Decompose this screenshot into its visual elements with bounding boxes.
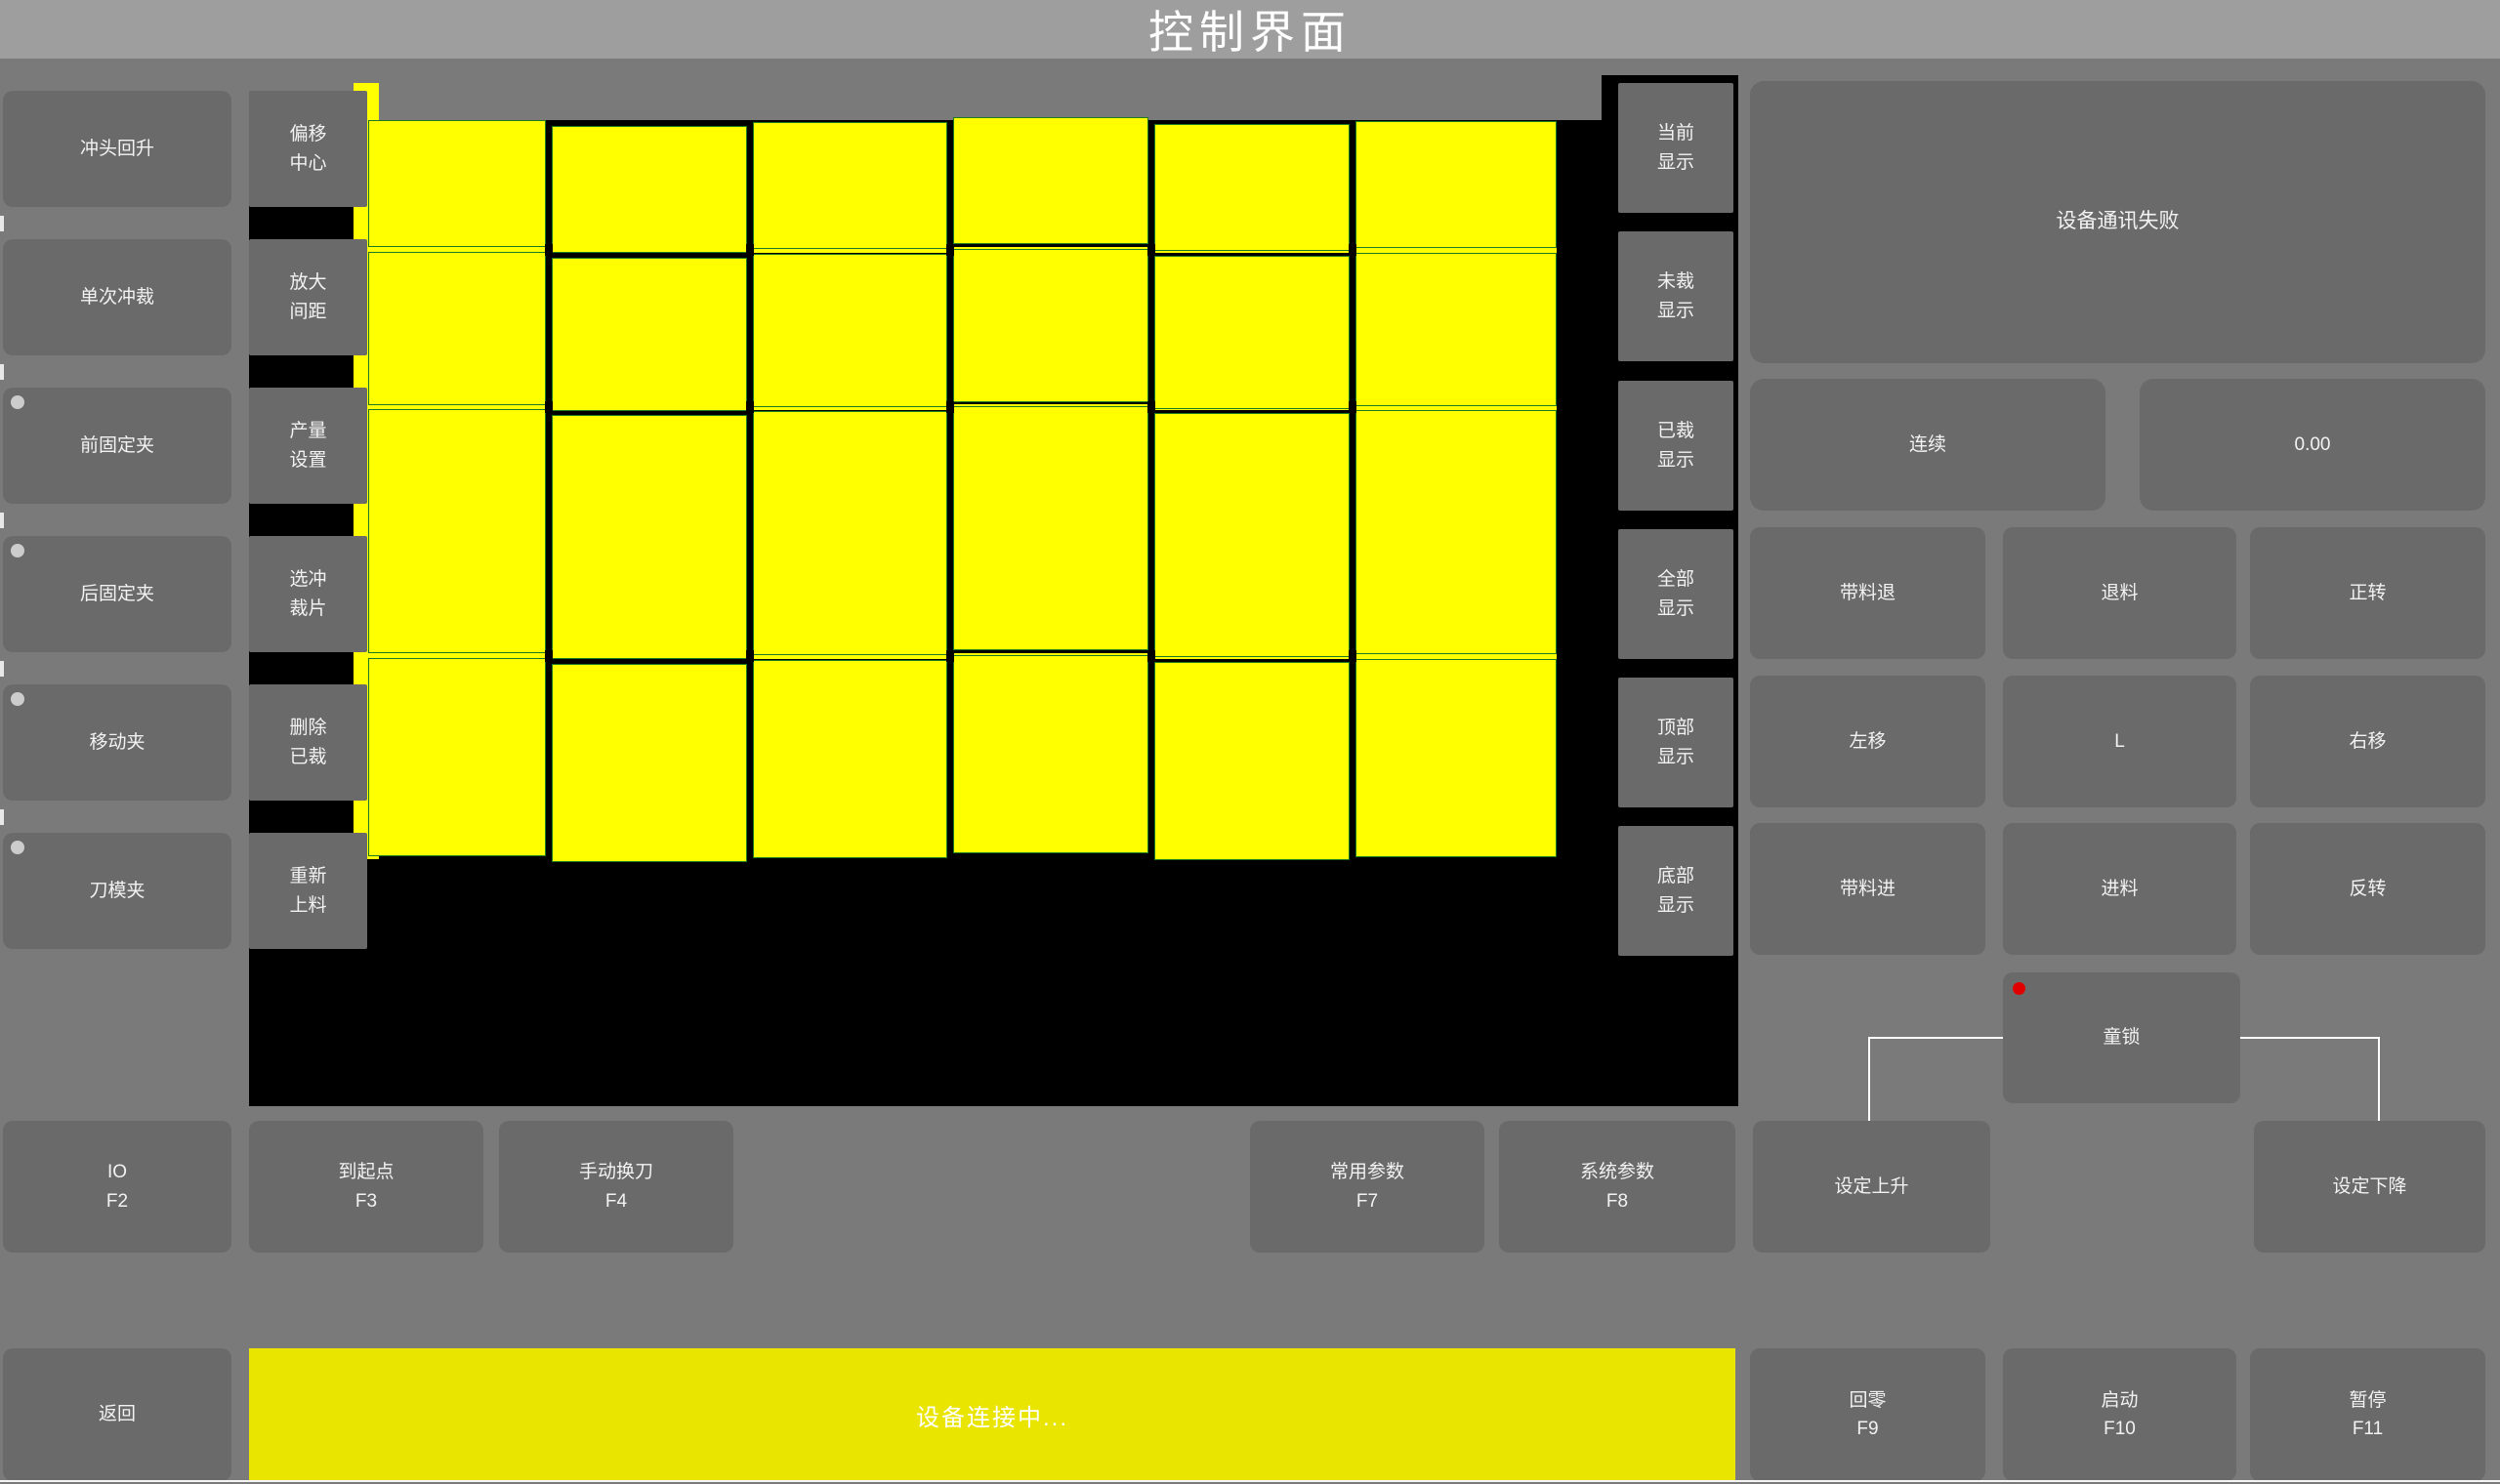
button-common-params-f7[interactable]: 常用参数F7 — [1250, 1121, 1484, 1253]
page-title: 控制界面 — [1148, 0, 1352, 62]
nesting-piece — [1154, 413, 1350, 657]
nesting-grid-detail — [1147, 244, 1155, 256]
nesting-piece — [368, 409, 546, 653]
nesting-piece — [368, 658, 546, 856]
nesting-grid-detail — [746, 244, 754, 256]
back-button[interactable]: 返回 — [3, 1348, 231, 1481]
button-label: 设定上升 — [1834, 1173, 1908, 1201]
device-status-panel: 设备通讯失败 — [1750, 81, 2485, 363]
button-label: 连续 — [1909, 431, 1946, 459]
button-label: 底部 — [1657, 862, 1694, 890]
button-die-clamp[interactable]: 刀模夹 — [3, 833, 231, 949]
button-label: L — [2114, 727, 2125, 756]
nesting-grid-detail — [946, 244, 954, 256]
fkey-label: F9 — [1856, 1415, 1878, 1443]
button-label: 显示 — [1657, 891, 1694, 920]
button-front-clamp[interactable]: 前固定夹 — [3, 388, 231, 504]
nesting-piece — [953, 117, 1148, 244]
button-l-mode[interactable]: L — [2003, 676, 2236, 807]
button-label: 设定下降 — [2332, 1173, 2406, 1201]
bracket-line — [2378, 1037, 2380, 1123]
edge-mark — [0, 216, 4, 231]
fkey-label: F3 — [355, 1187, 377, 1216]
button-label: 设置 — [289, 446, 326, 474]
indicator-dot — [11, 692, 24, 706]
edge-mark — [0, 364, 4, 380]
edge-mark — [0, 661, 4, 677]
connection-status-text: 设备连接中... — [916, 1398, 1068, 1432]
button-label: 删除 — [289, 714, 326, 742]
button-label: 全部 — [1657, 565, 1694, 594]
nesting-piece — [1154, 256, 1350, 409]
button-punch-return[interactable]: 冲头回升 — [3, 91, 231, 207]
button-offset-center[interactable]: 偏移中心 — [249, 91, 367, 207]
button-label: 启动 — [2101, 1386, 2138, 1415]
button-label: 右移 — [2349, 727, 2386, 756]
button-label: 裁片 — [289, 595, 326, 623]
button-label: 未裁 — [1657, 268, 1694, 296]
nesting-piece — [953, 655, 1148, 853]
nesting-grid-detail — [1147, 650, 1155, 662]
bracket-line — [2240, 1037, 2380, 1039]
nesting-piece — [953, 406, 1148, 650]
button-label: 刀模夹 — [89, 877, 145, 905]
button-rotate-reverse[interactable]: 反转 — [2250, 823, 2485, 955]
value-display-field[interactable]: 0.00 — [2140, 379, 2485, 511]
button-label: 当前 — [1657, 119, 1694, 147]
nesting-piece — [953, 249, 1148, 402]
device-status-text: 设备通讯失败 — [2057, 206, 2180, 238]
button-to-origin-f3[interactable]: 到起点F3 — [249, 1121, 483, 1253]
nesting-grid-detail — [1349, 401, 1356, 413]
button-feed-material[interactable]: 进料 — [2003, 823, 2236, 955]
nesting-piece — [1355, 121, 1557, 248]
button-feed-in-with-material[interactable]: 带料进 — [1750, 823, 1985, 955]
button-label: IO — [107, 1158, 127, 1186]
button-label: 上料 — [289, 891, 326, 920]
edge-mark — [0, 513, 4, 528]
nesting-grid-detail — [545, 650, 553, 662]
nesting-piece — [552, 664, 747, 862]
button-label: 显示 — [1657, 743, 1694, 771]
button-label: 移动夹 — [89, 728, 145, 757]
button-delete-cut[interactable]: 删除已裁 — [249, 684, 367, 801]
button-label: 选冲 — [289, 565, 326, 594]
button-label: 已裁 — [289, 743, 326, 771]
bottom-edge-line — [0, 1480, 2500, 1482]
bracket-line — [1868, 1037, 2003, 1039]
nesting-piece — [753, 254, 947, 407]
button-moving-clamp[interactable]: 移动夹 — [3, 684, 231, 801]
button-label: 退料 — [2101, 579, 2138, 607]
button-label: 放大 — [289, 268, 326, 297]
nesting-grid-detail — [946, 401, 954, 413]
button-label: 正转 — [2349, 579, 2386, 607]
child-lock-led — [2013, 982, 2025, 995]
nesting-piece — [753, 411, 947, 655]
button-label: 童锁 — [2103, 1023, 2140, 1051]
button-home-f9[interactable]: 回零F9 — [1750, 1348, 1985, 1481]
indicator-dot — [11, 395, 24, 409]
button-child-lock[interactable]: 童锁 — [2003, 972, 2240, 1103]
button-label: 冲头回升 — [80, 135, 154, 163]
nesting-piece — [552, 415, 747, 659]
nesting-grid-detail — [1147, 401, 1155, 413]
nesting-grid-detail — [946, 650, 954, 662]
nesting-piece — [753, 660, 947, 858]
edge-mark — [0, 809, 4, 825]
button-label: 已裁 — [1657, 417, 1694, 445]
nesting-grid-detail — [545, 401, 553, 413]
button-show-top[interactable]: 顶部显示 — [1618, 678, 1733, 807]
indicator-dot — [11, 544, 24, 557]
mode-continuous-button[interactable]: 连续 — [1750, 379, 2105, 511]
button-label: 重新 — [289, 862, 326, 890]
button-label: 到起点 — [338, 1158, 394, 1186]
button-show-bottom[interactable]: 底部显示 — [1618, 826, 1733, 956]
button-label: 显示 — [1657, 148, 1694, 177]
button-show-current[interactable]: 当前显示 — [1618, 83, 1733, 213]
button-unload-material[interactable]: 退料 — [2003, 527, 2236, 659]
fkey-label: F8 — [1606, 1187, 1628, 1216]
button-output-settings[interactable]: 产量设置 — [249, 388, 367, 504]
nesting-grid-detail — [1349, 244, 1356, 256]
button-label: 后固定夹 — [80, 580, 154, 608]
fkey-label: F2 — [106, 1187, 128, 1216]
nesting-piece — [1154, 662, 1350, 860]
button-label: 反转 — [2349, 875, 2386, 903]
button-enlarge-spacing[interactable]: 放大间距 — [249, 239, 367, 355]
nesting-piece — [1355, 659, 1557, 857]
button-label: 左移 — [1849, 727, 1886, 756]
button-label: 显示 — [1657, 446, 1694, 474]
nesting-piece — [552, 126, 747, 253]
nesting-piece — [552, 258, 747, 411]
button-show-uncut[interactable]: 未裁显示 — [1618, 231, 1733, 361]
button-label: 显示 — [1657, 595, 1694, 623]
button-label: 暂停 — [2349, 1386, 2386, 1415]
button-rear-clamp[interactable]: 后固定夹 — [3, 536, 231, 652]
nesting-piece — [753, 122, 947, 249]
value-text: 0.00 — [2295, 431, 2331, 459]
button-label: 带料进 — [1840, 875, 1896, 903]
button-reload-material[interactable]: 重新上料 — [249, 833, 367, 949]
nesting-grid-detail — [746, 401, 754, 413]
button-show-all[interactable]: 全部显示 — [1618, 529, 1733, 659]
nesting-piece — [1355, 253, 1557, 406]
nesting-piece — [1154, 124, 1350, 251]
title-bar: 控制界面 — [0, 0, 2500, 59]
button-start-f10[interactable]: 启动F10 — [2003, 1348, 2236, 1481]
button-label: 回零 — [1849, 1386, 1886, 1415]
nesting-piece — [368, 252, 546, 405]
button-manual-tool-change-f4[interactable]: 手动换刀F4 — [499, 1121, 733, 1253]
button-label: 返回 — [99, 1400, 136, 1428]
control-screen: 控制界面 冲头回升 单次冲裁 前固定夹 后固定夹 移动夹 刀模夹 偏移中心 放大… — [0, 0, 2500, 1484]
button-label: 手动换刀 — [579, 1158, 653, 1186]
nesting-piece — [1355, 410, 1557, 654]
button-label: 顶部 — [1657, 714, 1694, 742]
fkey-label: F11 — [2353, 1415, 2383, 1443]
button-select-piece[interactable]: 选冲裁片 — [249, 536, 367, 652]
fkey-label: F10 — [2104, 1415, 2136, 1443]
button-label: 中心 — [289, 149, 326, 178]
button-label: 常用参数 — [1330, 1158, 1404, 1186]
button-label: 进料 — [2101, 875, 2138, 903]
button-move-right[interactable]: 右移 — [2250, 676, 2485, 807]
button-pause-f11[interactable]: 暂停F11 — [2250, 1348, 2485, 1481]
button-label: 产量 — [289, 417, 326, 445]
button-label: 前固定夹 — [80, 432, 154, 460]
fkey-label: F4 — [605, 1187, 627, 1216]
button-feed-back-with-material[interactable]: 带料退 — [1750, 527, 1985, 659]
button-rotate-forward[interactable]: 正转 — [2250, 527, 2485, 659]
indicator-dot — [11, 841, 24, 854]
button-label: 偏移 — [289, 120, 326, 148]
button-label: 间距 — [289, 298, 326, 326]
button-label: 显示 — [1657, 297, 1694, 325]
bracket-line — [1868, 1037, 1870, 1123]
button-single-cut[interactable]: 单次冲裁 — [3, 239, 231, 355]
nesting-piece — [368, 120, 546, 247]
button-move-left[interactable]: 左移 — [1750, 676, 1985, 807]
button-set-rise[interactable]: 设定上升 — [1753, 1121, 1990, 1253]
button-show-cut[interactable]: 已裁显示 — [1618, 381, 1733, 511]
button-io-f2[interactable]: IOF2 — [3, 1121, 231, 1253]
nesting-grid-detail — [1349, 650, 1356, 662]
nesting-grid-detail — [545, 244, 553, 256]
button-set-fall[interactable]: 设定下降 — [2254, 1121, 2485, 1253]
connection-status-bar: 设备连接中... — [249, 1348, 1735, 1481]
button-label: 带料退 — [1840, 579, 1896, 607]
fkey-label: F7 — [1356, 1187, 1378, 1216]
button-label: 系统参数 — [1580, 1158, 1654, 1186]
button-label: 单次冲裁 — [80, 283, 154, 311]
button-system-params-f8[interactable]: 系统参数F8 — [1499, 1121, 1735, 1253]
nesting-grid-detail — [746, 650, 754, 662]
